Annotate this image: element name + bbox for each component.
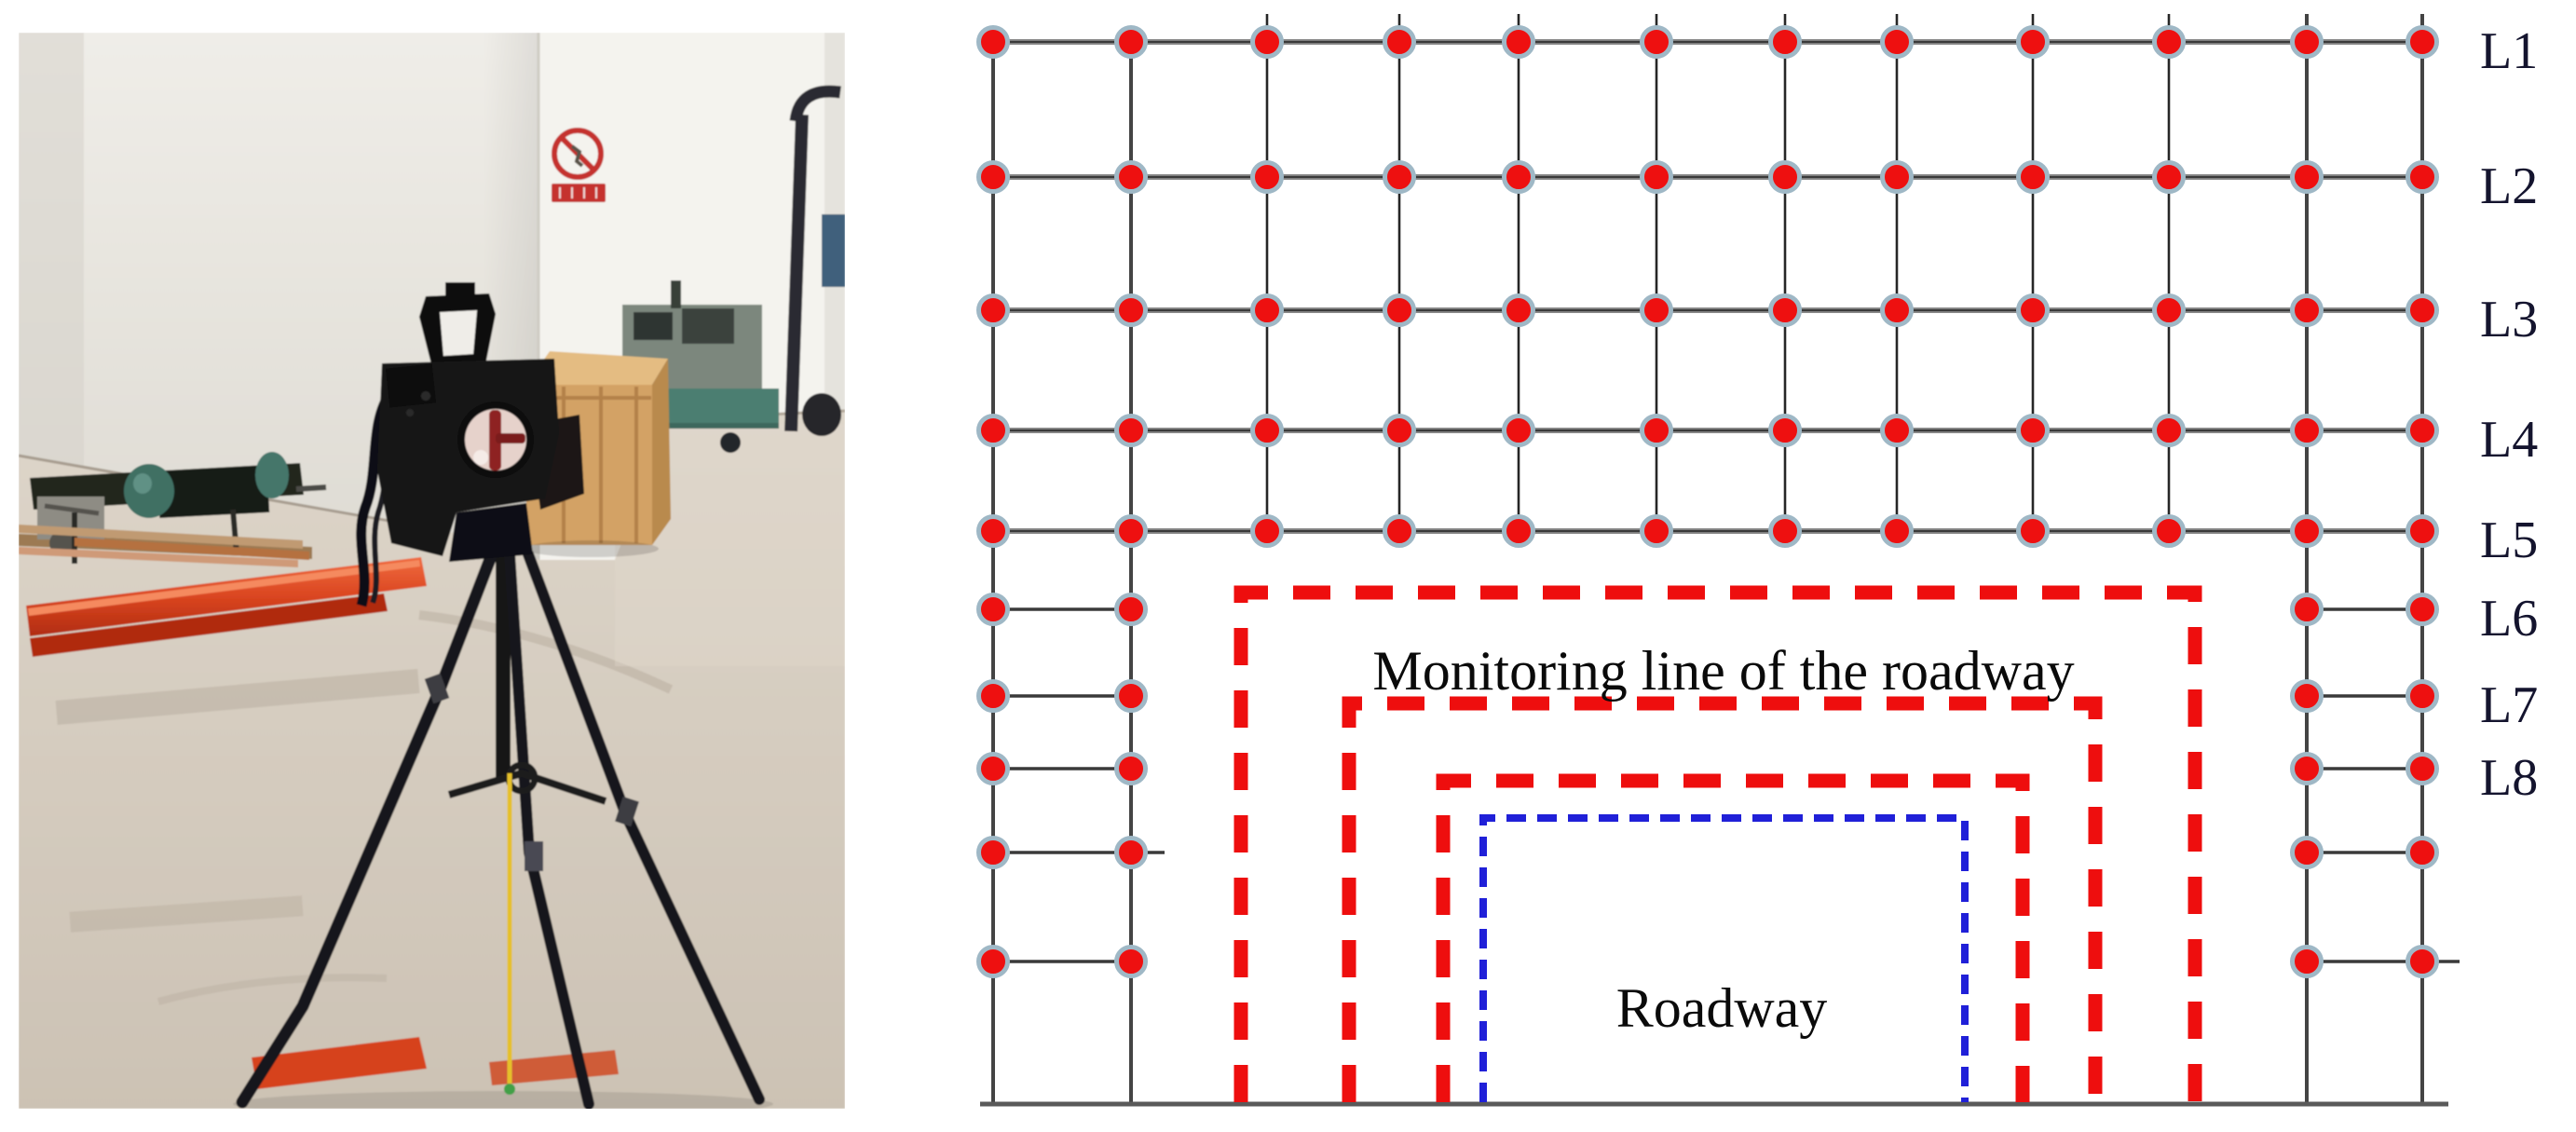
monitoring-point — [1117, 163, 1146, 192]
monitoring-point — [2408, 163, 2437, 192]
monitoring-point — [1385, 28, 1414, 57]
monitoring-line-caption: Monitoring line of the roadway — [1372, 640, 2074, 702]
lens-glint — [473, 450, 488, 465]
plumb-bob-tip — [504, 1084, 515, 1095]
monitoring-point — [2155, 416, 2184, 445]
monitoring-point — [1642, 416, 1671, 445]
camera-button-1 — [421, 391, 430, 401]
figure-canvas: L1L2L3L4L5L6L7L8 Monitoring line of the … — [0, 0, 2576, 1132]
line-label-l2: L2 — [2480, 157, 2538, 215]
monitoring-point — [2293, 416, 2322, 445]
monitoring-point — [1385, 296, 1414, 325]
monitoring-layout-diagram-panel: L1L2L3L4L5L6L7L8 Monitoring line of the … — [969, 0, 2576, 1132]
left-wall-shadow — [19, 33, 84, 471]
monitoring-point — [1117, 296, 1146, 325]
monitoring-point — [1642, 517, 1671, 546]
monitoring-point — [1642, 28, 1671, 57]
monitoring-point — [1771, 296, 1800, 325]
monitoring-point — [2408, 948, 2437, 976]
monitoring-point — [2293, 755, 2322, 784]
cart-machine-detail-1 — [634, 312, 673, 340]
monitoring-point — [2155, 163, 2184, 192]
monitoring-point — [1117, 595, 1146, 624]
monitoring-point — [2293, 682, 2322, 711]
lens-reflection-horizontal — [496, 433, 525, 443]
blue-equipment — [822, 214, 845, 287]
monitoring-point — [1117, 28, 1146, 57]
monitoring-point — [1117, 682, 1146, 711]
monitoring-point — [2408, 416, 2437, 445]
monitoring-diagram: L1L2L3L4L5L6L7L8 Monitoring line of the … — [969, 0, 2576, 1132]
cart-wheel-right — [720, 432, 741, 453]
monitoring-point — [2293, 595, 2322, 624]
monitoring-point — [2408, 28, 2437, 57]
monitoring-point — [2155, 517, 2184, 546]
monitoring-point — [2155, 28, 2184, 57]
monitoring-point — [2293, 839, 2322, 867]
monitoring-point — [1117, 755, 1146, 784]
roadway-caption: Roadway — [1616, 977, 1828, 1039]
monitoring-point — [2293, 163, 2322, 192]
line-labels-layer: L1L2L3L4L5L6L7L8 — [2480, 22, 2538, 807]
monitoring-point — [1253, 416, 1282, 445]
monitoring-point — [2019, 296, 2048, 325]
monitoring-point — [979, 755, 1008, 784]
line-label-l1: L1 — [2480, 22, 2538, 80]
monitoring-point — [1505, 517, 1533, 546]
monitoring-point — [2408, 595, 2437, 624]
monitoring-point — [1117, 416, 1146, 445]
monitoring-point — [2019, 416, 2048, 445]
monitoring-point — [2019, 517, 2048, 546]
monitoring-point — [979, 296, 1008, 325]
monitoring-point — [1253, 296, 1282, 325]
line-label-l6: L6 — [2480, 590, 2538, 648]
monitoring-line-inner — [1443, 781, 2023, 1102]
monitoring-point — [2155, 296, 2184, 325]
monitoring-point — [1883, 296, 1912, 325]
monitoring-point — [1505, 163, 1533, 192]
monitoring-point — [979, 839, 1008, 867]
photo-illustration — [19, 33, 845, 1109]
monitoring-point — [979, 517, 1008, 546]
motor-end-cap-2 — [255, 452, 289, 498]
monitoring-point — [1883, 517, 1912, 546]
monitoring-point — [1771, 163, 1800, 192]
monitoring-point — [1117, 517, 1146, 546]
monitoring-point — [2019, 28, 2048, 57]
monitoring-point — [1253, 517, 1282, 546]
monitoring-point — [1385, 163, 1414, 192]
monitoring-point — [2019, 163, 2048, 192]
handle-window — [440, 310, 477, 356]
motor-end-cap-1 — [124, 464, 174, 518]
line-label-l4: L4 — [2480, 411, 2538, 469]
monitoring-point — [1642, 163, 1671, 192]
monitoring-point — [2408, 296, 2437, 325]
line-label-l7: L7 — [2480, 676, 2538, 734]
motor-highlight-1 — [133, 473, 152, 494]
monitoring-point — [2293, 948, 2322, 976]
line-label-l8: L8 — [2480, 749, 2538, 807]
monitoring-point — [979, 163, 1008, 192]
grid-layer — [980, 14, 2460, 1104]
monitoring-point — [1505, 416, 1533, 445]
tripod-head — [449, 503, 533, 562]
monitoring-point — [1385, 517, 1414, 546]
camera-button-2 — [406, 409, 414, 416]
cart-machine-stack — [671, 280, 681, 308]
monitoring-point — [979, 682, 1008, 711]
monitoring-point — [979, 948, 1008, 976]
crate-shadow — [525, 540, 659, 557]
monitoring-point — [1883, 163, 1912, 192]
line-label-l5: L5 — [2480, 511, 2538, 569]
monitoring-point — [979, 28, 1008, 57]
line-label-l3: L3 — [2480, 291, 2538, 348]
hand-truck-wheel — [802, 393, 841, 436]
cart-machine-detail-2 — [682, 308, 734, 344]
monitoring-point — [2408, 682, 2437, 711]
monitoring-point — [1505, 28, 1533, 57]
monitoring-point — [1771, 416, 1800, 445]
monitoring-point — [979, 595, 1008, 624]
camera-side-module — [386, 364, 436, 408]
roadway-outline — [1483, 818, 1965, 1102]
monitoring-point — [1117, 839, 1146, 867]
crate-side-face — [652, 359, 671, 545]
experiment-photo-panel — [19, 33, 845, 1109]
monitoring-point — [1505, 296, 1533, 325]
handle-knob — [445, 282, 475, 296]
monitoring-point — [2408, 755, 2437, 784]
monitoring-point — [1771, 28, 1800, 57]
monitoring-point — [1253, 28, 1282, 57]
monitoring-point — [2408, 517, 2437, 546]
monitoring-point — [1883, 416, 1912, 445]
monitoring-point — [1385, 416, 1414, 445]
monitoring-point — [1771, 517, 1800, 546]
monitoring-point — [1883, 28, 1912, 57]
monitoring-point — [2293, 28, 2322, 57]
monitoring-point — [2293, 517, 2322, 546]
monitoring-line-middle — [1349, 703, 2095, 1102]
monitoring-point — [979, 416, 1008, 445]
monitoring-points-layer — [979, 28, 2437, 976]
machine-shaft — [296, 487, 326, 489]
monitoring-point — [2293, 296, 2322, 325]
leg-lock-center — [525, 841, 543, 871]
monitoring-point — [1117, 948, 1146, 976]
monitoring-point — [2408, 839, 2437, 867]
monitoring-point — [1642, 296, 1671, 325]
monitoring-point — [1253, 163, 1282, 192]
